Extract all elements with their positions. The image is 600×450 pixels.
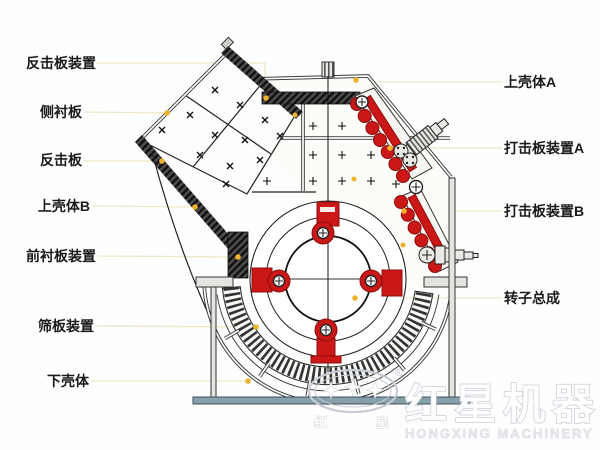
- support-leg-left: [211, 287, 216, 397]
- impact-plate-assembly-bar: [262, 92, 360, 104]
- logo-stamp-right: 星: [376, 415, 389, 430]
- label-lower-casing: 下壳体: [47, 373, 90, 389]
- top-bolt-stub: [322, 62, 334, 77]
- label-side-liner: 侧衬板: [40, 104, 83, 120]
- label-front-liner-assembly: 前衬板装置: [26, 248, 96, 264]
- bracket-left: [196, 277, 233, 287]
- impact-crusher-diagram: ® 红 星 红星机器 HONGXING MACHINERY 反击板装置 侧衬板 …: [0, 0, 600, 450]
- label-blow-bar-assembly-b: 打击板装置B: [504, 203, 584, 219]
- label-rotor-assembly: 转子总成: [504, 290, 560, 306]
- brand-text-en: HONGXING MACHINERY: [405, 426, 594, 441]
- bracket-right: [424, 277, 467, 287]
- label-upper-casing-a: 上壳体A: [504, 74, 556, 90]
- brand-text-cn: 红星机器: [405, 381, 600, 428]
- hammer-left: [252, 268, 290, 292]
- diagram-page: ® 红 星 红星机器 HONGXING MACHINERY 反击板装置 侧衬板 …: [0, 0, 600, 450]
- label-impact-plate-assembly: 反击板装置: [26, 55, 96, 71]
- support-leg-right: [449, 178, 455, 397]
- label-sieve-plate-assembly: 筛板装置: [38, 318, 94, 334]
- label-upper-casing-b: 上壳体B: [38, 198, 90, 214]
- logo-stamp-left: 红: [314, 415, 327, 430]
- label-impact-plate: 反击板: [40, 152, 83, 168]
- registered-mark: ®: [395, 368, 403, 379]
- label-blow-bar-assembly-a: 打击板装置A: [504, 140, 584, 156]
